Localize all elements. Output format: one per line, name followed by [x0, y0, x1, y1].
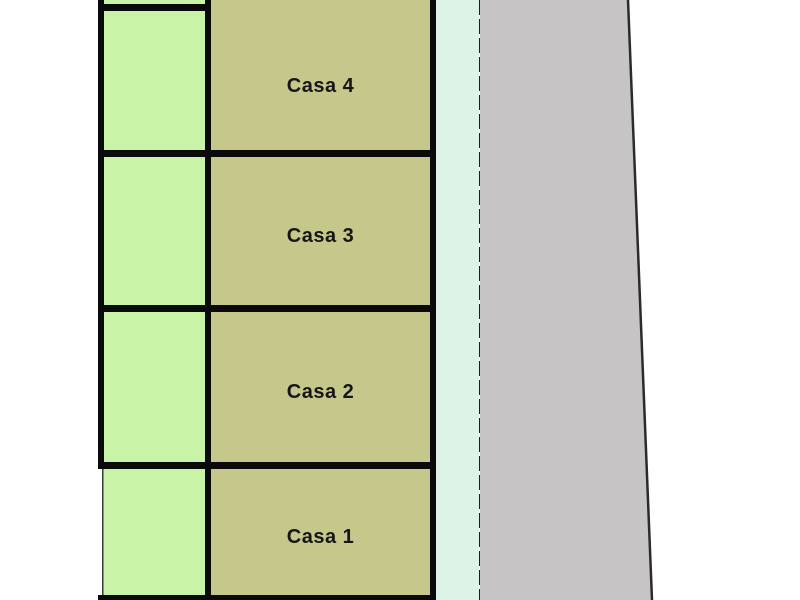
garden-lot-casa1 — [98, 469, 205, 595]
plot-row-casa2: Casa 2 — [104, 312, 430, 462]
house-lot-casa3: Casa 3 — [211, 157, 430, 305]
plot-row-casa1: Casa 1 — [104, 469, 430, 595]
site-plan: Casa 4 Casa 3 Casa 2 Casa 1 — [0, 0, 800, 600]
house-label-casa1: Casa 1 — [287, 526, 355, 549]
house-lot-partial — [211, 0, 430, 11]
house-lot-casa1: Casa 1 — [211, 469, 430, 595]
house-lot-casa2: Casa 2 — [211, 312, 430, 462]
house-label-casa4: Casa 4 — [287, 75, 355, 98]
garden-lot-casa4 — [104, 11, 205, 150]
plot-row-casa3: Casa 3 — [104, 157, 430, 305]
walkway-strip — [436, 0, 480, 600]
garden-lot-casa2 — [104, 312, 205, 462]
road-surface — [480, 0, 652, 600]
road-area — [480, 0, 800, 600]
plot-row-partial — [104, 0, 430, 4]
plot-row-casa4: Casa 4 — [104, 11, 430, 150]
garden-lot-partial — [104, 0, 205, 4]
garden-lot-casa3 — [104, 157, 205, 305]
house-label-casa2: Casa 2 — [287, 381, 355, 404]
house-label-casa3: Casa 3 — [287, 225, 355, 248]
lots-grid: Casa 4 Casa 3 Casa 2 Casa 1 — [98, 0, 436, 600]
house-lot-casa4: Casa 4 — [211, 11, 430, 150]
